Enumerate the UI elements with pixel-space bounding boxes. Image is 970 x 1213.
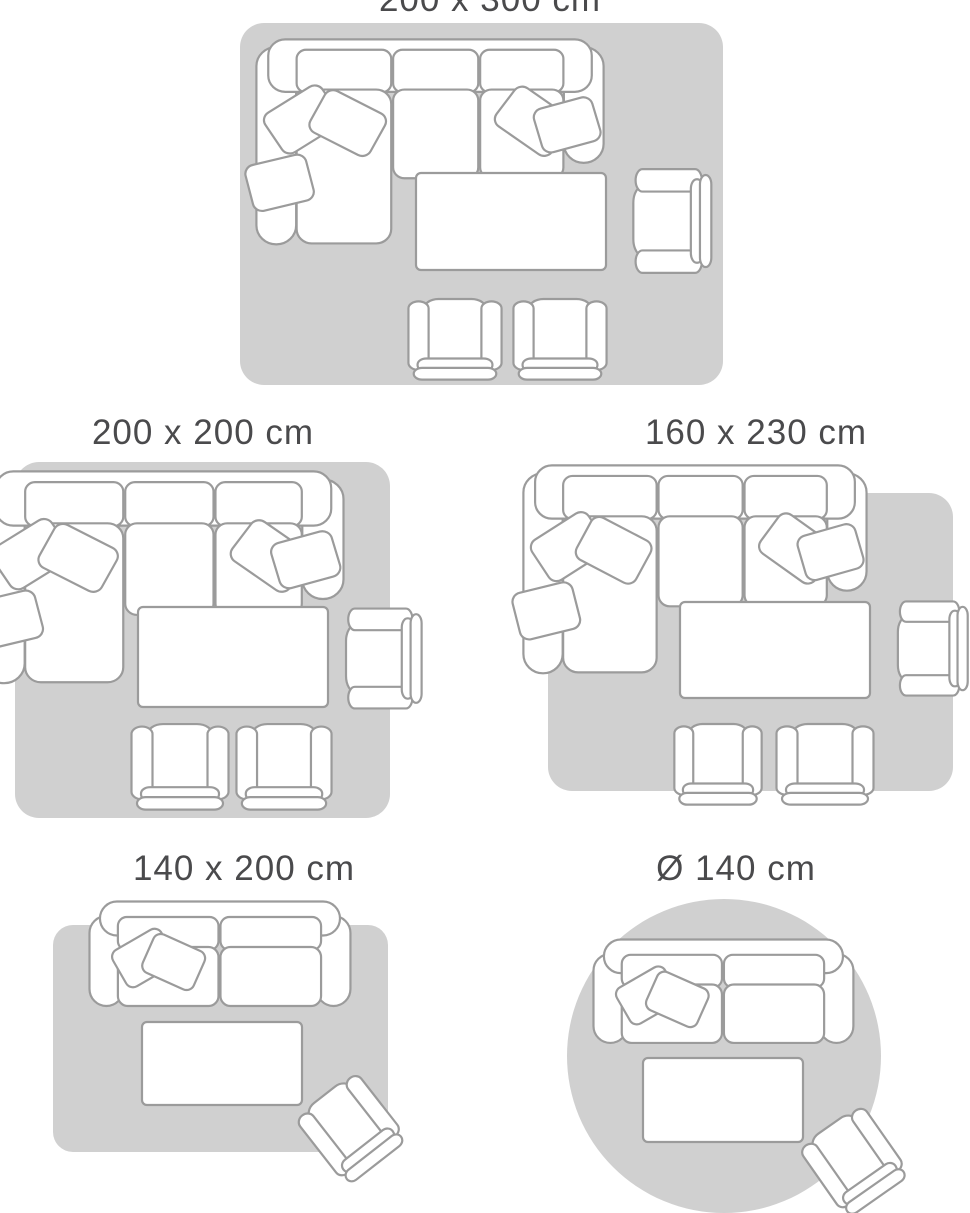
coffee-table-icon [416,173,606,270]
coffee-table-icon [138,607,328,707]
diagram-200x200 [0,453,435,825]
rug-size-guide: 200 x 300 cm 200 x 200 cm 160 x 230 cm 1… [0,0,970,1213]
size-label-200x300: 200 x 300 cm [240,0,740,19]
diagram-200x300 [235,18,730,393]
diagram-140x200 [40,885,460,1197]
diagram-round-140 [555,885,925,1213]
armchair-icon [633,169,711,273]
armchair-icon [346,609,422,709]
loveseat-sofa-icon [593,939,853,1042]
size-label-round-140: Ø 140 cm [536,850,936,888]
armchair-icon [674,724,761,805]
armchair-icon [132,724,229,810]
armchair-icon [236,724,331,810]
armchair-icon [513,299,606,380]
coffee-table-icon [643,1058,803,1142]
size-label-200x200: 200 x 200 cm [3,414,403,452]
coffee-table-icon [142,1022,302,1105]
armchair-icon [777,724,874,805]
armchair-icon [898,601,968,695]
size-label-140x200: 140 x 200 cm [44,850,444,888]
armchair-icon [408,299,501,380]
coffee-table-icon [680,602,870,698]
size-label-160x230: 160 x 230 cm [556,414,956,452]
loveseat-sofa-icon [89,902,350,1007]
diagram-160x230 [510,450,970,812]
